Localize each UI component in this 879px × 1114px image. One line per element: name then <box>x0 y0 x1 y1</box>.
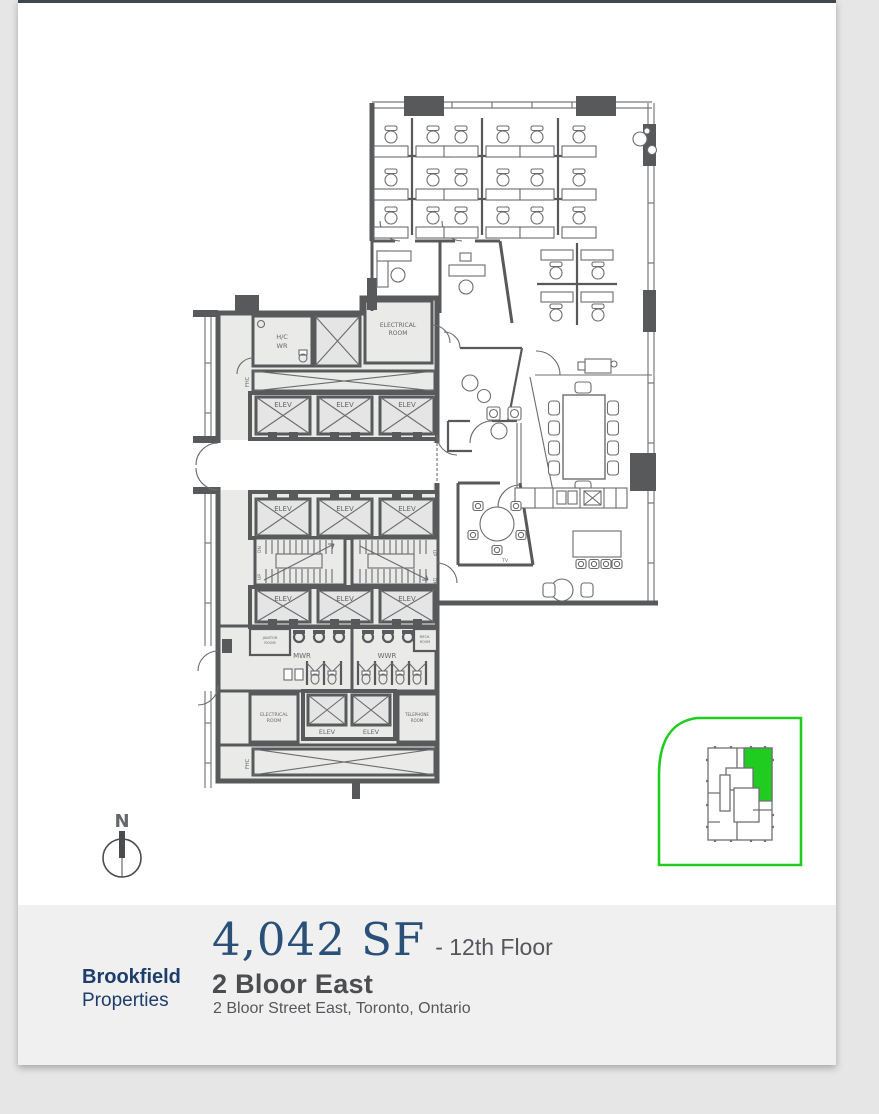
private-offices <box>377 251 485 294</box>
north-arrow: N <box>74 801 170 897</box>
svg-text:UP: UP <box>257 574 263 580</box>
svg-text:ELEV: ELEV <box>336 505 354 513</box>
svg-text:ELEV: ELEV <box>363 728 380 736</box>
svg-text:ROOM: ROOM <box>411 718 424 723</box>
svg-text:ELEV: ELEV <box>274 505 292 513</box>
company-suffix: Properties <box>82 989 181 1012</box>
svg-text:TV: TV <box>501 558 509 564</box>
svg-text:UP: UP <box>431 550 437 556</box>
brookfield-logo: Brookfield Properties <box>82 965 181 1013</box>
stairwell-right: UP DN <box>352 538 438 585</box>
janitor-room: JANITOR ROOM <box>250 629 290 655</box>
bar-table <box>573 531 622 569</box>
svg-text:ELEV: ELEV <box>274 595 292 603</box>
shaft-band-lower: FHC <box>245 749 435 775</box>
building-address: 2 Bloor Street East, Toronto, Ontario <box>213 1000 471 1018</box>
svg-text:TELEPHONE: TELEPHONE <box>404 712 429 717</box>
building-name: 2 Bloor East <box>212 969 373 1000</box>
svg-text:ELEV: ELEV <box>336 401 354 409</box>
meeting-room-table <box>468 502 526 555</box>
svg-text:MECH.: MECH. <box>420 635 431 639</box>
desk-cluster-d <box>537 243 617 325</box>
mwr-label: MWR <box>293 652 311 660</box>
area-value: 4,042 SF <box>212 913 425 966</box>
wwr-label: WWR <box>378 652 397 660</box>
svg-text:DN: DN <box>431 578 437 585</box>
company-name: Brookfield <box>82 965 181 989</box>
kitchen <box>515 488 627 508</box>
svg-text:JANITOR: JANITOR <box>262 636 278 640</box>
north-label: N <box>114 811 129 832</box>
elevator-bank-2: ELEV ELEV ELEV <box>250 490 437 538</box>
building-core: H/C WR ELECTRICAL ROOM FHC <box>193 298 441 799</box>
svg-text:ELEV: ELEV <box>319 728 336 736</box>
reception-area <box>462 375 521 439</box>
conference-room <box>549 359 619 492</box>
floor-value: - 12th Floor <box>435 934 553 960</box>
svg-text:ELEV: ELEV <box>336 595 354 603</box>
elevator-bank-4: ELEV ELEV <box>303 691 395 739</box>
floorplan-flyer: { "page": { "background": "#e6e6e6", "pa… <box>0 0 879 1114</box>
shaft-top <box>315 316 360 366</box>
area-headline: 4,042 SF- 12th Floor <box>212 913 553 966</box>
svg-text:ROOM: ROOM <box>389 330 408 337</box>
svg-text:ELEV: ELEV <box>398 401 416 409</box>
svg-text:DN: DN <box>257 546 263 553</box>
svg-text:ELECTRICAL: ELECTRICAL <box>260 712 288 718</box>
cafe-table <box>543 579 593 601</box>
svg-text:ROOM: ROOM <box>420 640 430 644</box>
electrical-room-bottom: ELECTRICAL ROOM <box>250 694 298 742</box>
elevator-bank-1: ELEV ELEV ELEV <box>250 393 437 440</box>
document-page: H/C WR ELECTRICAL ROOM FHC <box>18 0 836 1065</box>
desk-cluster-c <box>520 118 596 238</box>
desk-cluster-b <box>444 118 520 238</box>
electrical-room-top: ELECTRICAL ROOM <box>365 301 432 363</box>
wall-stub <box>352 781 360 799</box>
svg-text:ELEV: ELEV <box>398 595 416 603</box>
hc-washroom: H/C WR <box>253 316 312 366</box>
floor-plan-drawing: H/C WR ELECTRICAL ROOM FHC <box>185 91 670 803</box>
telephone-room: TELEPHONE ROOM <box>398 694 437 742</box>
svg-text:FHC: FHC <box>245 758 251 769</box>
svg-text:FHC: FHC <box>245 376 251 387</box>
svg-text:ELECTRICAL: ELECTRICAL <box>380 322 417 329</box>
elevator-bank-3: ELEV ELEV ELEV <box>250 587 437 627</box>
svg-text:ROOM: ROOM <box>264 641 275 645</box>
mech-room: MECH. ROOM <box>414 629 437 651</box>
desk-cluster-a <box>374 118 450 238</box>
stairwell-left: DN UP <box>255 538 345 585</box>
footer-band: Brookfield Properties 4,042 SF- 12th Flo… <box>18 905 836 1065</box>
svg-text:ELEV: ELEV <box>398 505 416 513</box>
svg-text:ELEV: ELEV <box>274 401 292 409</box>
svg-text:WR: WR <box>277 342 288 350</box>
hc-wr-label: H/C <box>276 333 288 341</box>
shaft-band-upper: FHC <box>245 371 435 391</box>
svg-text:ROOM: ROOM <box>267 718 281 724</box>
keyplan <box>655 715 805 868</box>
